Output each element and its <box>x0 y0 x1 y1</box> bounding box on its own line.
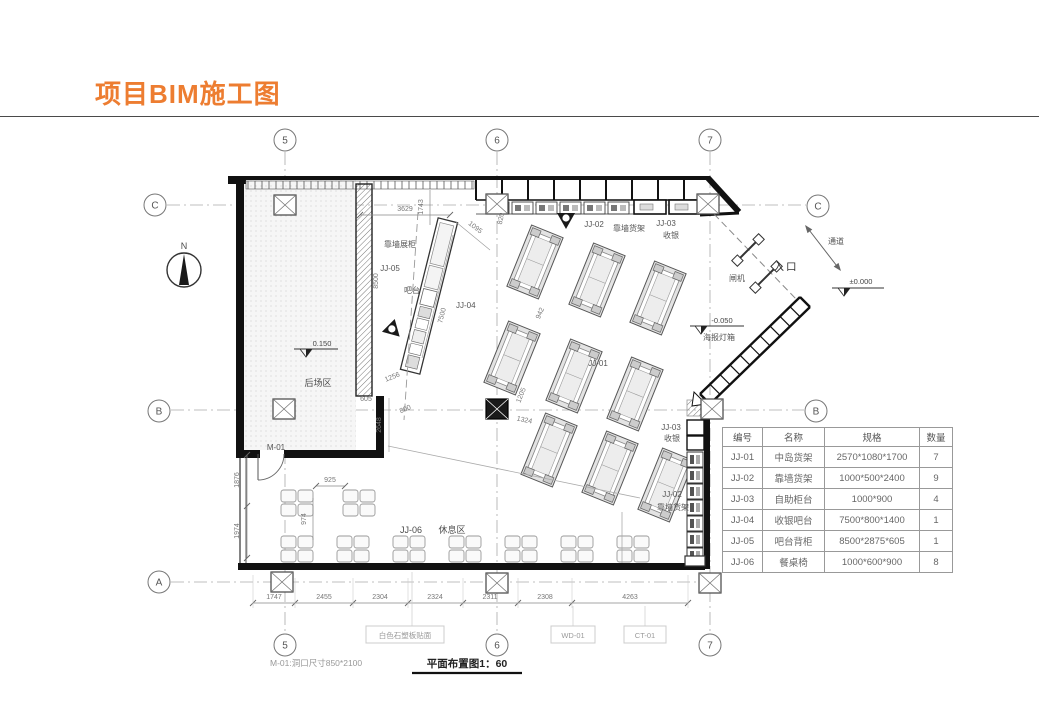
cashier-right-label: 收银 <box>664 433 680 443</box>
jj02-top-label: JJ-02 <box>584 220 604 229</box>
table-row: JJ-03自助柜台 1000*9004 <box>723 489 953 510</box>
svg-text:1743: 1743 <box>418 199 425 215</box>
svg-text:1876: 1876 <box>234 472 241 488</box>
jj01-label: JJ-01 <box>588 359 608 368</box>
finish-tag-wd01: WD-01 <box>561 631 584 640</box>
grid-bubble-c-left: C <box>151 201 158 212</box>
passage-label: 通道 <box>828 236 844 246</box>
turnstile-label: 闸机 <box>729 273 745 283</box>
north-arrow-icon: N <box>167 241 201 287</box>
north-label: N <box>181 241 188 251</box>
svg-text:7500: 7500 <box>437 307 448 324</box>
grid-bubble-6-bottom: 6 <box>494 641 500 652</box>
door-m01 <box>258 454 284 480</box>
floor-plan: 5 6 7 5 6 7 C B A C B N 0.150 <box>0 0 1039 720</box>
svg-text:1747: 1747 <box>266 594 282 601</box>
svg-text:1974: 1974 <box>234 523 241 539</box>
col-header-name: 名称 <box>763 428 825 447</box>
grid-bubble-b-right: B <box>813 407 820 418</box>
grid-bubble-5-bottom: 5 <box>282 641 288 652</box>
backroom-area <box>244 180 356 450</box>
svg-text:800: 800 <box>399 404 413 415</box>
backroom-label: 后场区 <box>304 378 331 388</box>
svg-text:8500: 8500 <box>373 273 380 289</box>
jj05-label: JJ-05 <box>380 264 400 273</box>
table-row: JJ-02靠墙货架 1000*500*24009 <box>723 468 953 489</box>
col-header-qty: 数量 <box>920 428 953 447</box>
svg-text:0.150: 0.150 <box>313 339 332 348</box>
cashier-top-label: 收银 <box>663 230 679 240</box>
jj03-right-label: JJ-03 <box>661 423 681 432</box>
grid-bubble-7-bottom: 7 <box>707 641 713 652</box>
elevation-ground: ±0.000 <box>832 277 884 296</box>
table-row: JJ-01中岛货架 2570*1080*17007 <box>723 447 953 468</box>
wall-shelf-top-label: 靠墙货架 <box>613 223 645 233</box>
grid-bubble-6-top: 6 <box>494 136 500 147</box>
wall-shelf-right-label: 靠墙货架 <box>657 502 689 512</box>
table-row: JJ-05吧台背柜 8500*2875*6051 <box>723 531 953 552</box>
jj03-top-label: JJ-03 <box>656 219 676 228</box>
col-header-code: 编号 <box>723 428 763 447</box>
rest-area-label: 休息区 <box>438 524 465 535</box>
svg-text:-0.050: -0.050 <box>711 316 732 325</box>
fixture-schedule-table: 编号 名称 规格 数量 JJ-01中岛货架 2570*1080*17007 JJ… <box>722 427 953 573</box>
svg-text:925: 925 <box>324 477 336 484</box>
grid-bubble-c-right: C <box>814 202 821 213</box>
entrance-label: 入口 <box>774 261 799 273</box>
svg-text:1324: 1324 <box>516 415 533 425</box>
table-row: JJ-04收银吧台 7500*800*14001 <box>723 510 953 531</box>
grid-bubble-7-top: 7 <box>707 136 713 147</box>
svg-text:3629: 3629 <box>397 206 413 213</box>
finish-tag-ct01: CT-01 <box>635 631 655 640</box>
table-row: JJ-06餐桌椅 1000*600*9008 <box>723 552 953 573</box>
grid-bubble-b-left: B <box>156 407 163 418</box>
svg-text:2455: 2455 <box>316 594 332 601</box>
svg-text:974: 974 <box>301 513 308 525</box>
grid-bubble-a-left: A <box>156 578 163 589</box>
slide: 项目BIM施工图 <box>0 0 1039 720</box>
section-marker-icon <box>557 213 575 229</box>
svg-text:820: 820 <box>497 212 506 225</box>
svg-text:2324: 2324 <box>427 594 443 601</box>
right-shelf-band <box>685 400 705 566</box>
finish-tag-stone: 白色石塑板贴面 <box>379 630 432 640</box>
jj05-back-cabinet <box>356 184 372 396</box>
bar-label: 吧台 <box>404 285 420 295</box>
poster-lightbox-label: 海报灯箱 <box>703 332 735 342</box>
jj04-label: JJ-04 <box>456 301 476 310</box>
m01-label: M-01 <box>267 443 286 452</box>
svg-text:±0.000: ±0.000 <box>850 277 873 286</box>
svg-text:4263: 4263 <box>622 594 638 601</box>
svg-text:942: 942 <box>535 307 546 321</box>
wall-display-label: 靠墙展柜 <box>384 239 416 249</box>
svg-text:2308: 2308 <box>537 594 553 601</box>
drawing-title: 平面布置图1：60 <box>427 657 508 670</box>
svg-text:2304: 2304 <box>372 594 388 601</box>
svg-text:605: 605 <box>360 396 372 403</box>
jj02-right-label: JJ-02 <box>662 490 682 499</box>
table-header-row: 编号 名称 规格 数量 <box>723 428 953 447</box>
jj06-label: JJ-06 <box>400 525 422 535</box>
top-shelf-band <box>476 180 714 214</box>
passage-arrow <box>805 225 841 271</box>
svg-text:2311: 2311 <box>482 594 497 601</box>
elevation-entry: -0.050 海报灯箱 <box>690 316 744 342</box>
finish-tags: 白色石塑板贴面 WD-01 CT-01 <box>366 572 666 643</box>
grid-bubble-5-top: 5 <box>282 136 288 147</box>
island-shelves <box>484 225 694 522</box>
section-marker-icon <box>382 319 406 343</box>
svg-text:2648: 2648 <box>376 417 383 433</box>
col-header-spec: 规格 <box>825 428 920 447</box>
svg-text:1256: 1256 <box>384 371 401 383</box>
m01-note: M-01:洞口尺寸850*2100 <box>270 658 362 668</box>
